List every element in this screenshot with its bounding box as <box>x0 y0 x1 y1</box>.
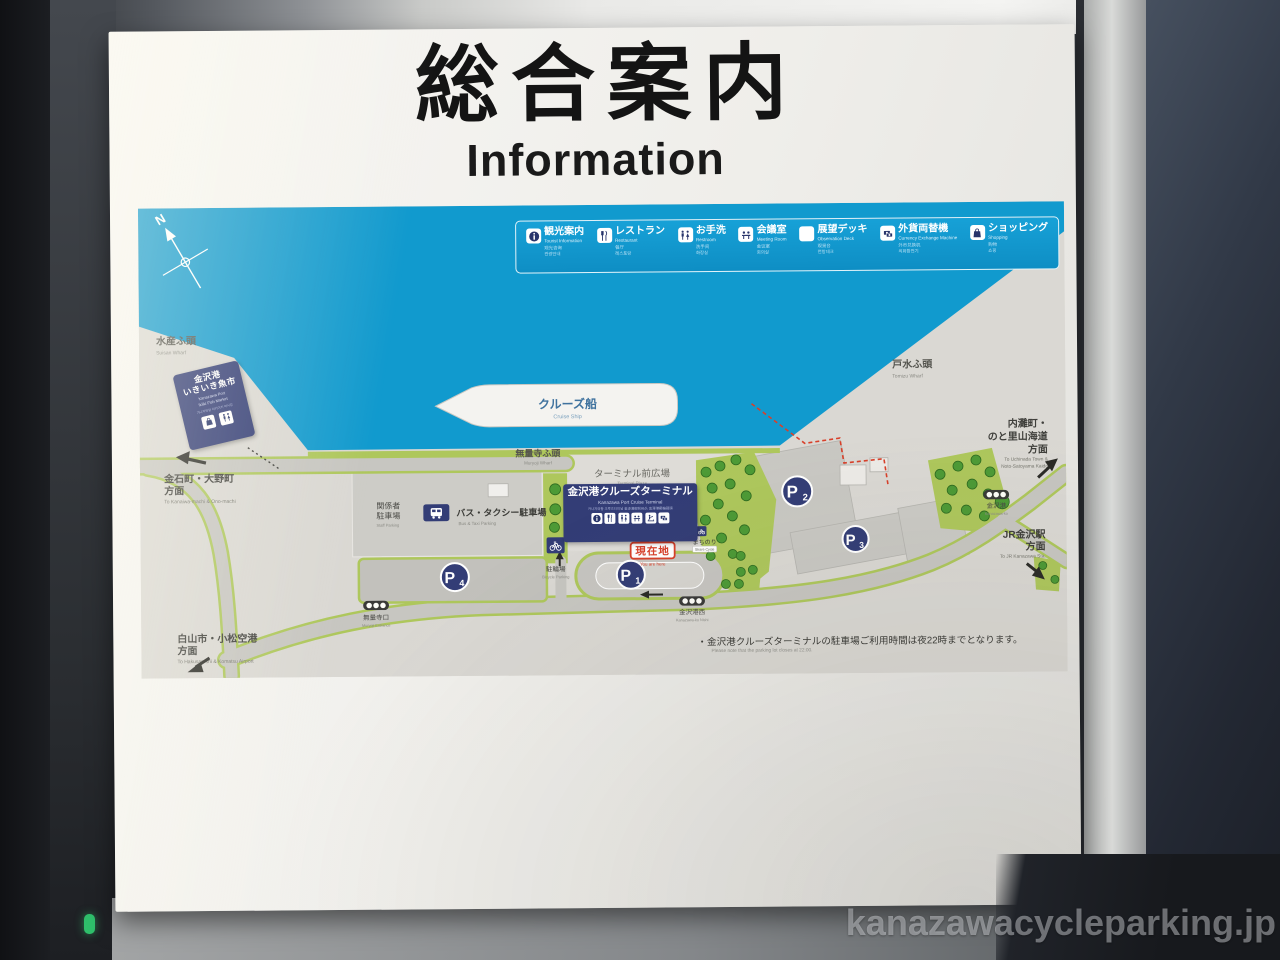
direction-uchinada-ja2: のと里山海道 <box>988 429 1048 442</box>
terminal-sub: 카나자와항 크루즈터미널 金泽港邮轮码头 金澤港郵輪碼頭 <box>566 505 694 511</box>
traffic-signal-icon-ko <box>983 490 1009 500</box>
p3-number: 3 <box>859 540 864 550</box>
p1-number: 1 <box>635 576 640 586</box>
building-outline-1 <box>840 465 866 485</box>
board-title-english: Information <box>109 130 1075 190</box>
direction-hakusan-en: To Hakusan-shi & Komatsu Airport <box>177 659 254 666</box>
terminal-icons <box>566 512 694 524</box>
window-frame-left <box>0 0 50 960</box>
tourist-information-icon <box>591 512 602 523</box>
you-are-here-ja: 現在地 <box>635 544 670 557</box>
small-building <box>488 484 508 497</box>
machinori-en: Share Cycle <box>695 548 715 552</box>
suisan-wharf-en: Suisan Wharf <box>156 350 187 356</box>
currency-exchange-icon <box>880 226 895 241</box>
direction-kanaiwa-ja1: 金石町・大野町 <box>163 472 234 486</box>
legend-en: Restroom <box>696 238 726 243</box>
direction-kanaiwa-ja2: 方面 <box>164 484 184 497</box>
legend-ko: 화장실 <box>696 250 726 255</box>
legend-en: Observation Deck <box>818 237 868 242</box>
you-are-here-en: You are here <box>640 561 666 566</box>
legend-en: Tourist Information <box>544 239 584 244</box>
meeting-room-icon <box>739 227 754 242</box>
legend-ko: 회의실 <box>757 250 787 255</box>
legend-ko: 레스토랑 <box>615 251 665 256</box>
terminal-en: Kanazawa Port Cruise Terminal <box>566 499 694 505</box>
legend-en: Shopping <box>988 235 1048 240</box>
legend-ja: ショッピング <box>988 223 1048 233</box>
tourist-information-icon <box>526 228 541 243</box>
legend-ko: 쇼핑 <box>988 248 1048 253</box>
legend-zh: 洗手间 <box>696 245 726 250</box>
legend-ja: レストラン <box>615 226 665 236</box>
p2-number: 2 <box>803 492 808 503</box>
shopping-icon <box>970 225 985 240</box>
direction-jr-en: To JR Kanazawa Sta. <box>1000 553 1046 559</box>
legend-item-observation-deck: 展望デッキObservation Deck观景台전망데크 <box>799 225 867 267</box>
information-board: 総合案内 Information <box>109 24 1082 912</box>
legend-zh: 会议室 <box>757 244 787 249</box>
observation-deck-icon <box>645 512 656 523</box>
currency-exchange-icon <box>659 512 670 523</box>
legend-en: Restaurant <box>615 238 665 243</box>
shopping-icon <box>201 414 217 430</box>
watermark: kanazawacycleparking.jp <box>846 902 1276 944</box>
p2-marker: P 2 <box>782 476 812 506</box>
direction-uchinada-en1: To Uchinada Town & <box>1004 456 1048 462</box>
p4-number: 4 <box>459 578 464 588</box>
traffic-signal-icon-nishi <box>679 596 705 606</box>
direction-kanaiwa-en: To Kanaiwa-machi & Ono-machi <box>164 499 235 506</box>
suisan-wharf-ja: 水産ふ頭 <box>155 334 197 347</box>
photo-of-information-board: 総合案内 Information <box>0 0 1280 960</box>
direction-uchinada-en2: Noto-Satoyama Kaido <box>1001 463 1048 469</box>
legend-zh: 外币兑换机 <box>898 243 957 248</box>
cruise-ship-label-ja: クルーズ船 <box>538 396 597 411</box>
window-glass-left <box>50 0 116 960</box>
direction-uchinada-ja1: 内灘町・ <box>1008 416 1048 429</box>
signal-label-ko-ja: 金沢港 <box>987 501 1007 510</box>
bicycle-parking-ja: 駐輪場 <box>546 564 566 573</box>
legend-item-restaurant: レストランRestaurant餐厅레스토랑 <box>597 226 665 268</box>
facility-legend: 観光案内Tourist Information观光咨询관광안내 レストランRes… <box>515 216 1059 273</box>
legend-item-shopping: ショッピングShopping购物쇼핑 <box>970 223 1048 265</box>
legend-ja: お手洗 <box>696 226 726 236</box>
legend-ja: 会議室 <box>757 225 787 235</box>
legend-zh: 购物 <box>988 242 1048 247</box>
legend-ja: 展望デッキ <box>817 225 867 235</box>
signal-label-muryoji-ja: 無量寺口 <box>363 613 389 622</box>
legend-ja: 外貨両替機 <box>898 224 957 234</box>
legend-zh: 餐厅 <box>615 245 665 250</box>
white-pillar <box>1084 0 1146 960</box>
legend-item-meeting-room: 会議室Meeting Room会议室회의실 <box>739 225 787 266</box>
muryoji-wharf-ja: 無量寺ふ頭 <box>515 447 561 458</box>
observation-deck-icon <box>799 226 814 241</box>
green-indicator-light <box>84 914 95 934</box>
p3-marker: P 3 <box>842 526 868 552</box>
legend-item-currency-exchange: 外貨両替機Currency Exchange Machine外币兑换机외화환전기 <box>880 224 957 266</box>
bus-icon-tile <box>423 504 449 521</box>
legend-ja: 観光案内 <box>544 227 584 237</box>
tomizu-wharf-ja: 戸水ふ頭 <box>892 357 933 370</box>
restroom-icon <box>218 410 234 426</box>
meeting-room-icon <box>632 512 643 523</box>
note-ja: ・金沢港クルーズターミナルの駐車場ご利用時間は夜22時までとなります。 <box>697 631 1062 648</box>
direction-hakusan-ja2: 方面 <box>177 644 197 657</box>
p2-letter: P <box>786 482 797 501</box>
parking-hours-note: ・金沢港クルーズターミナルの駐車場ご利用時間は夜22時までとなります。 Plea… <box>697 631 1062 654</box>
signal-label-muryoji-en: Muryoji Entrance <box>362 624 391 628</box>
direction-uchinada-ja3: 方面 <box>1028 442 1048 455</box>
direction-jr-ja2: 方面 <box>1026 539 1046 552</box>
bicycle-icon-tile <box>547 537 565 553</box>
terminal-ja: 金沢港クルーズターミナル <box>566 486 694 499</box>
legend-zh: 观景台 <box>818 243 868 248</box>
tomizu-wharf-en: Tomizu Wharf <box>892 373 923 379</box>
bus-taxi-parking-en: Bus & Taxi Parking <box>458 521 496 526</box>
p3-letter: P <box>846 532 856 549</box>
terminal-plaza-ja: ターミナル前広場 <box>594 467 671 480</box>
staff-parking-ja2: 駐車場 <box>376 511 400 521</box>
legend-item-restroom: お手洗Restroom洗手间화장실 <box>678 226 726 267</box>
legend-ko: 전망데크 <box>818 249 868 254</box>
p1-letter: P <box>620 568 631 585</box>
p4-letter: P <box>444 570 455 587</box>
legend-ko: 외화환전기 <box>898 249 957 254</box>
legend-zh: 观光咨询 <box>544 246 584 251</box>
traffic-signal-icon-muryoji <box>363 601 389 611</box>
legend-ko: 관광안내 <box>544 252 584 257</box>
muryoji-wharf-en: Muryoji Wharf <box>524 460 553 465</box>
restroom-icon <box>678 227 693 242</box>
signal-label-ko-en: Kanazawa-ko <box>985 512 1008 516</box>
staff-parking-en: Staff Parking <box>376 523 399 528</box>
restroom-icon <box>618 512 629 523</box>
signal-label-nishi-ja: 金沢港西 <box>679 607 706 616</box>
legend-en: Currency Exchange Machine <box>898 236 957 241</box>
direction-jr-ja1: JR金沢駅 <box>1003 527 1047 540</box>
direction-hakusan-ja1: 白山市・小松空港 <box>177 632 258 646</box>
p4-marker: P 4 <box>441 563 469 591</box>
cruise-terminal-sign: 金沢港クルーズターミナル Kanazawa Port Cruise Termin… <box>563 483 697 542</box>
board-title-japanese: 総合案内 <box>109 36 1076 132</box>
staff-parking-ja1: 関係者 <box>376 502 400 511</box>
cruise-ship-label-en: Cruise Ship <box>553 414 581 420</box>
legend-item-tourist-information: 観光案内Tourist Information观光咨询관광안내 <box>526 227 584 268</box>
bus-taxi-parking-ja: バス・タクシー駐車場 <box>456 506 546 518</box>
restaurant-icon <box>597 228 612 243</box>
legend-en: Meeting Room <box>757 237 787 242</box>
bicycle-parking-en: Bicycle Parking <box>542 574 569 579</box>
restaurant-icon <box>605 512 616 523</box>
port-map: クルーズ船 Cruise Ship N <box>138 201 1068 678</box>
window-glass-right <box>1146 0 1280 960</box>
signal-label-nishi-en: Kanazawa-ko Nishi <box>676 618 709 622</box>
